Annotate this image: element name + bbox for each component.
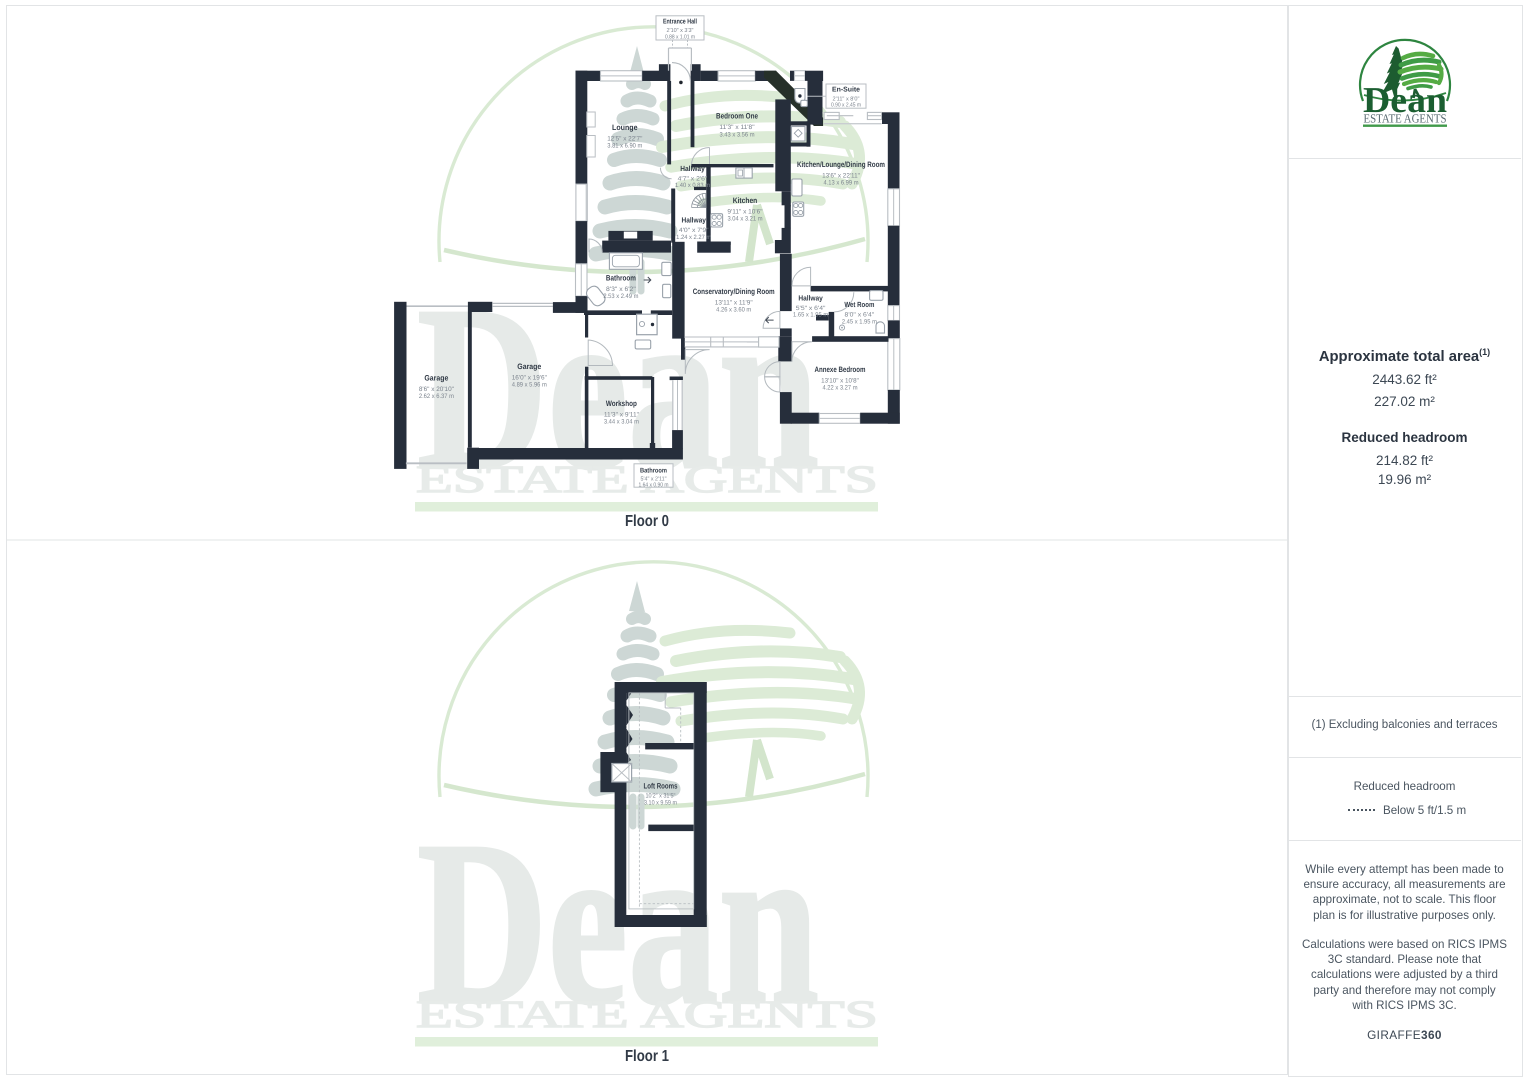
svg-text:13'10" x 10'8": 13'10" x 10'8"	[821, 377, 859, 384]
svg-text:10'2" x 31'5": 10'2" x 31'5"	[646, 793, 676, 800]
svg-text:Kitchen: Kitchen	[733, 196, 758, 205]
svg-text:Workshop: Workshop	[606, 399, 637, 408]
svg-text:Hallway: Hallway	[798, 293, 823, 302]
svg-text:8'6" x 20'10": 8'6" x 20'10"	[419, 386, 454, 393]
svg-text:4.89 x 5.96 m: 4.89 x 5.96 m	[512, 382, 547, 389]
svg-text:Hallway: Hallway	[681, 216, 706, 225]
svg-text:Bedroom One: Bedroom One	[716, 112, 759, 121]
svg-text:11'3" x 11'8": 11'3" x 11'8"	[719, 124, 754, 131]
svg-text:1.65 x 1.95 m: 1.65 x 1.95 m	[793, 312, 828, 319]
svg-text:Lounge: Lounge	[612, 123, 638, 132]
svg-text:Floor 1: Floor 1	[625, 1048, 669, 1065]
svg-text:2.53 x 2.49 m: 2.53 x 2.49 m	[603, 293, 638, 300]
svg-text:0.88 x 1.01 m: 0.88 x 1.01 m	[665, 34, 695, 41]
svg-text:Annexe Bedroom: Annexe Bedroom	[815, 365, 866, 374]
svg-text:Garage: Garage	[424, 374, 449, 383]
svg-text:Hallway: Hallway	[680, 164, 705, 173]
svg-text:13'11" x 11'9": 13'11" x 11'9"	[715, 299, 753, 306]
svg-text:En-Suite: En-Suite	[832, 87, 860, 94]
svg-text:3.10 x 9.59 m: 3.10 x 9.59 m	[644, 800, 677, 807]
svg-text:2'10" x 3'3": 2'10" x 3'3"	[667, 27, 694, 34]
svg-text:4.26 x 3.60 m: 4.26 x 3.60 m	[716, 307, 751, 314]
svg-text:Loft Rooms: Loft Rooms	[644, 782, 679, 791]
svg-text:Garage: Garage	[517, 362, 542, 371]
svg-text:4.13 x 6.99 m: 4.13 x 6.99 m	[823, 180, 858, 187]
svg-text:Wet Room: Wet Room	[844, 300, 874, 309]
svg-text:Bathroom: Bathroom	[606, 274, 636, 283]
svg-text:5'4" x 2'11": 5'4" x 2'11"	[641, 476, 667, 483]
svg-text:13'6" x 22'11": 13'6" x 22'11"	[822, 173, 860, 180]
svg-text:1.64 x 0.90 m: 1.64 x 0.90 m	[639, 482, 669, 489]
svg-text:2'11" x 8'0": 2'11" x 8'0"	[833, 95, 860, 102]
svg-text:3.04 x 3.21 m: 3.04 x 3.21 m	[727, 216, 762, 223]
svg-text:1.40 x 0.83 m: 1.40 x 0.83 m	[675, 182, 710, 189]
svg-text:3.81 x 6.90 m: 3.81 x 6.90 m	[607, 143, 642, 150]
svg-text:12'5" x 22'7": 12'5" x 22'7"	[607, 136, 642, 143]
svg-text:2.62 x 6.37 m: 2.62 x 6.37 m	[419, 393, 454, 400]
svg-text:Bathroom: Bathroom	[640, 467, 667, 474]
svg-text:Floor 0: Floor 0	[625, 513, 669, 530]
svg-text:8'3" x 6'2": 8'3" x 6'2"	[606, 286, 636, 293]
svg-text:16'0" x 19'6": 16'0" x 19'6"	[512, 374, 547, 381]
svg-text:11'3" x 9'11": 11'3" x 9'11"	[604, 412, 639, 419]
svg-text:1.24 x 2.27 m: 1.24 x 2.27 m	[676, 234, 711, 241]
svg-text:Kitchen/Lounge/Dining Room: Kitchen/Lounge/Dining Room	[797, 160, 885, 169]
svg-text:Conservatory/Dining Room: Conservatory/Dining Room	[693, 287, 775, 296]
svg-text:2.45 x 1.95 m: 2.45 x 1.95 m	[842, 319, 877, 326]
svg-text:ESTATE AGENTS: ESTATE AGENTS	[1364, 112, 1447, 126]
svg-text:3.44 x 3.04 m: 3.44 x 3.04 m	[604, 419, 639, 426]
svg-text:0.90 x 2.45 m: 0.90 x 2.45 m	[831, 102, 861, 109]
svg-text:3.43 x 3.56 m: 3.43 x 3.56 m	[719, 131, 754, 138]
svg-text:Entrance Hall: Entrance Hall	[663, 19, 697, 26]
svg-text:4.22 x 3.27 m: 4.22 x 3.27 m	[822, 385, 857, 392]
svg-text:9'11" x 10'6": 9'11" x 10'6"	[727, 209, 762, 216]
